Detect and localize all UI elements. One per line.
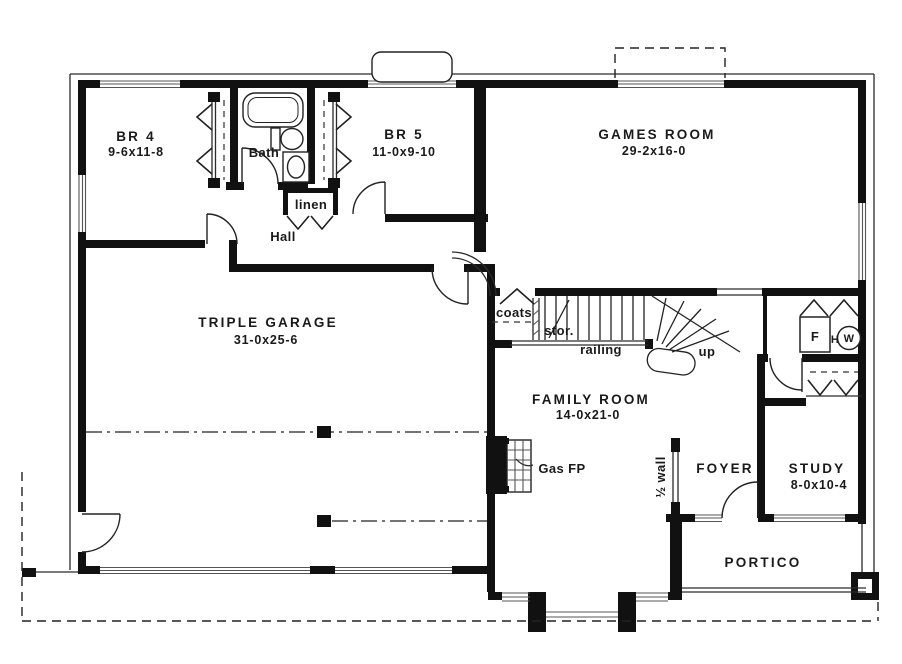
label-linen: linen <box>295 197 327 212</box>
room-label-hall: Hall <box>270 229 295 244</box>
label-hot-water-w: W <box>844 333 855 345</box>
label-furnace: F <box>811 329 819 344</box>
room-label-study: STUDY <box>789 461 846 476</box>
room-dims-games-room: 29-2x16-0 <box>622 144 686 158</box>
room-label-bath: Bath <box>249 145 280 160</box>
toilet-bowl <box>281 129 303 150</box>
floor-plan-page: BR 4 9-6x11-8 Bath BR 5 11-0x9-10 GAMES … <box>0 0 902 664</box>
exterior-walls <box>78 80 866 632</box>
room-dims-garage: 31-0x25-6 <box>234 333 298 347</box>
staircase <box>545 296 740 376</box>
label-coats: coats <box>496 305 532 320</box>
label-up: up <box>699 344 716 359</box>
interior-lines <box>22 100 866 592</box>
exterior-outline <box>70 74 874 592</box>
bathtub-inner <box>248 98 298 123</box>
label-storage: stor. <box>544 323 573 338</box>
window-box <box>372 52 452 82</box>
floor-plan-canvas: BR 4 9-6x11-8 Bath BR 5 11-0x9-10 GAMES … <box>0 0 902 664</box>
label-hot-water-h: H <box>831 334 839 346</box>
room-dims-family-room: 14-0x21-0 <box>556 408 620 422</box>
room-label-br5: BR 5 <box>384 127 424 142</box>
label-gas-fireplace: Gas FP <box>538 461 585 476</box>
room-dims-br4: 9-6x11-8 <box>108 145 164 159</box>
vanity-sink <box>288 156 305 178</box>
room-dims-study: 8-0x10-4 <box>791 478 847 492</box>
room-dims-br5: 11-0x9-10 <box>372 145 436 159</box>
room-label-foyer: FOYER <box>696 461 754 476</box>
doors <box>82 148 802 552</box>
room-label-family-room: FAMILY ROOM <box>532 392 650 407</box>
room-label-games-room: GAMES ROOM <box>598 127 715 142</box>
label-railing: railing <box>580 342 622 357</box>
room-label-br4: BR 4 <box>116 129 156 144</box>
room-label-garage: TRIPLE GARAGE <box>198 315 338 330</box>
room-label-portico: PORTICO <box>725 555 802 570</box>
label-half-wall: ½ wall <box>653 456 668 497</box>
